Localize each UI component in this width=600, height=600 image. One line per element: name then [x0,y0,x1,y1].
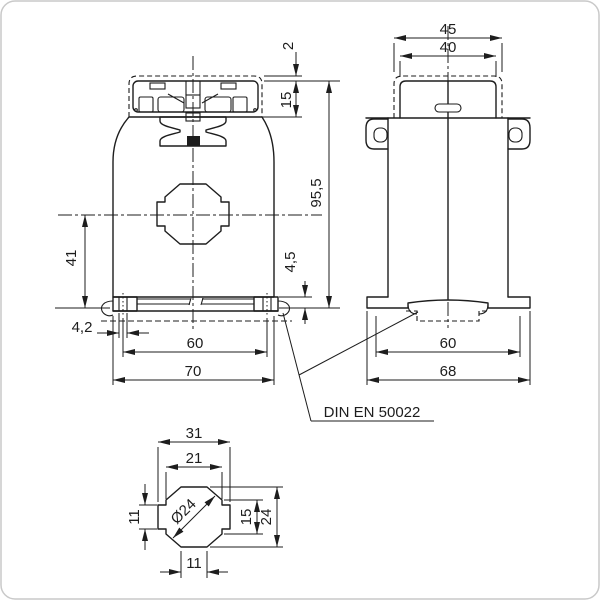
ear-left-slot [374,128,387,142]
dim-front-terminal-height: 15 [278,92,295,109]
terminal-opening-1 [139,97,153,112]
dim-front-total-height: 95,5 [308,178,325,207]
dim-detail-arm-height: 11 [126,509,143,525]
dim-detail-diameter: Ø24 [168,496,200,528]
cover-pin-right [254,109,257,112]
dim-front-body-width: 70 [185,363,202,380]
dim-front-rail-step: 4,5 [282,252,299,273]
page-border [1,1,599,599]
cover-pin-left [135,109,138,112]
din-standard-note: DIN EN 50022 [283,312,434,421]
drawing-canvas: 2 15 95,5 4,5 41 4,2 60 70 [0,0,600,600]
rail-clip-left [113,297,137,311]
ext-lines-21 [166,472,222,499]
ext-lines-bottom [279,297,340,308]
rail-clip-right [254,297,278,311]
terminal-slot-left [150,83,165,89]
dim-detail-outer-width: 31 [186,425,203,442]
front-view-dimensions: 2 15 95,5 4,5 41 4,2 60 70 [55,42,340,385]
terminal-slot-right [221,83,236,89]
ext-lines-top [264,76,340,81]
technical-drawing-page: 2 15 95,5 4,5 41 4,2 60 70 [0,0,600,600]
aperture-detail-view: 31 21 11 Ø24 15 24 11 [126,425,283,578]
side-view [366,26,530,328]
dim-front-slot-width: 4,2 [72,319,93,336]
cap-slot [435,104,461,112]
dim-detail-inner-height: 15 [238,509,255,526]
dim-side-cap-inner-width: 40 [440,39,457,56]
dim-side-rail-width: 60 [440,335,457,352]
rail-channel-bars [137,298,254,305]
din-standard-label: DIN EN 50022 [324,404,421,421]
dim-side-cap-outer-width: 45 [440,21,457,38]
ear-right-slot [509,128,522,142]
terminal-opening-2 [158,97,184,112]
dim-front-center-to-bottom: 41 [63,250,80,267]
dim-detail-inner-width: 21 [186,450,203,467]
leader-to-front-clip [283,313,311,421]
dim-detail-outer-height: 24 [258,509,275,526]
ear-left [366,119,388,149]
dim-side-base-width: 68 [440,363,457,380]
leader-to-side-rail [299,312,418,375]
dim-detail-arm-width: 11 [186,555,202,572]
terminal-opening-4 [233,97,247,112]
ear-right [508,119,530,149]
dim-front-gap: 2 [280,42,297,50]
dim-front-rail-spacing: 60 [187,335,204,352]
